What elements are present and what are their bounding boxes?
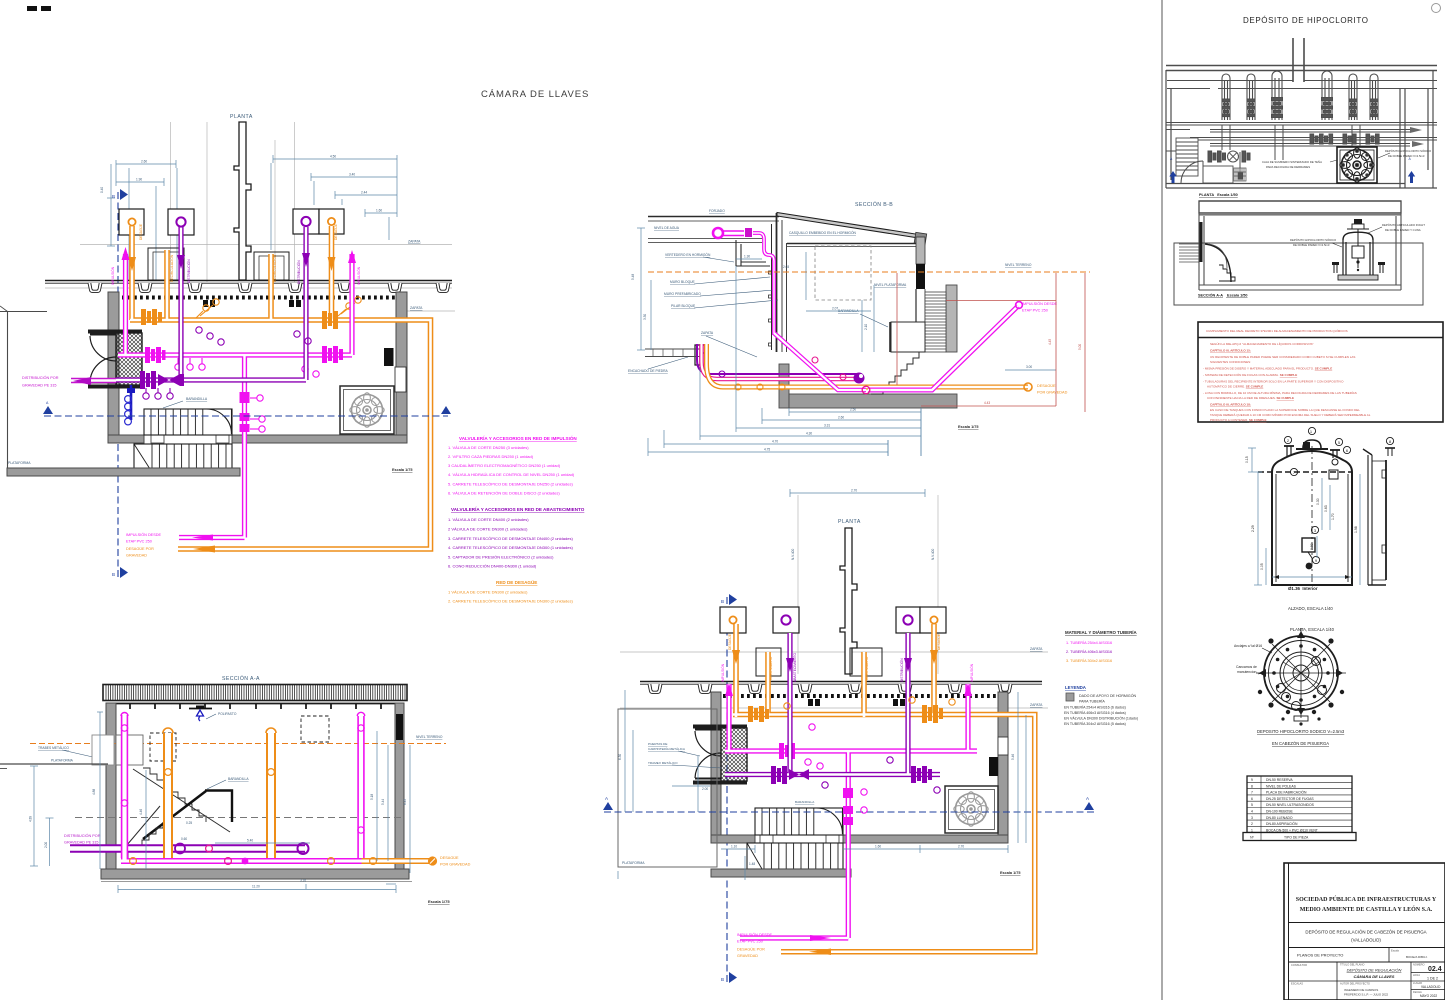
svg-text:4.70: 4.70 <box>772 440 778 444</box>
svg-text:ZAPATA: ZAPATA <box>1030 703 1043 707</box>
svg-text:CUMPLIMIENTO DEL REAL DECRETO: CUMPLIMIENTO DEL REAL DECRETO 379/2001 D… <box>1206 329 1348 333</box>
svg-text:DN-80 LLENADO: DN-80 LLENADO <box>1266 816 1293 820</box>
svg-text:3.16: 3.16 <box>300 879 306 883</box>
svg-text:AUTOMÁTICO DE CIERRE. SE CUMPL: AUTOMÁTICO DE CIERRE. SE CUMPLE <box>1207 385 1263 389</box>
svg-text:DEPÓSITO HIPOCLORITO SÓDICO: DEPÓSITO HIPOCLORITO SÓDICO <box>1385 148 1432 153</box>
svg-text:1.60: 1.60 <box>376 209 382 213</box>
svg-text:1.48: 1.48 <box>749 862 755 866</box>
svg-text:DISTRIBUCIÓN: DISTRIBUCIÓN <box>186 259 191 283</box>
svg-text:Escala 1/75: Escala 1/75 <box>428 899 450 904</box>
svg-text:5.46: 5.46 <box>1011 754 1015 760</box>
svg-text:Anclajes c/ lal Ø16: Anclajes c/ lal Ø16 <box>1234 644 1262 648</box>
svg-text:2.50: 2.50 <box>850 408 856 412</box>
svg-text:6. CONO REDUCCIÓN DN400-DN300: 6. CONO REDUCCIÓN DN400-DN300 (1 unidad) <box>448 564 537 569</box>
svg-text:UN RECIPIENTE DE DOBLE PARED P: UN RECIPIENTE DE DOBLE PARED PUEDE SER C… <box>1210 355 1355 359</box>
svg-text:CÁMARA DE LLAVES: CÁMARA DE LLAVES <box>1354 974 1395 979</box>
svg-text:DEPÓSITO DE REGULACIÓN DE CABE: DEPÓSITO DE REGULACIÓN DE CABEZÓN DE PIS… <box>1305 930 1426 935</box>
svg-text:REBOSADERO: REBOSADERO <box>865 656 869 680</box>
svg-text:DISTRIBUCIÓN: DISTRIBUCIÓN <box>899 658 904 682</box>
svg-text:3.31: 3.31 <box>824 424 830 428</box>
svg-text:3.40: 3.40 <box>349 173 355 177</box>
svg-text:Escala 1/75: Escala 1/75 <box>392 468 412 472</box>
svg-text:POR GRAVEDAD: POR GRAVEDAD <box>1037 391 1068 395</box>
svg-text:DN-50 RESERVA: DN-50 RESERVA <box>1266 778 1293 782</box>
svg-text:ABASTECIMIENTO: ABASTECIMIENTO <box>793 652 797 682</box>
svg-text:1.70: 1.70 <box>1331 513 1335 520</box>
svg-text:4.50: 4.50 <box>330 155 336 159</box>
svg-text:ESCALAS: ESCALAS <box>1291 982 1303 986</box>
svg-text:2.10: 2.10 <box>864 324 868 330</box>
svg-text:NIVEL PLATAFORMA: NIVEL PLATAFORMA <box>874 283 907 287</box>
svg-text:2.29: 2.29 <box>1251 525 1255 532</box>
svg-text:EN TUBERÍA 254x4 AISI316 (6 da: EN TUBERÍA 254x4 AISI316 (6 dados) <box>1064 706 1126 710</box>
svg-text:IMPULSIÓN: IMPULSIÓN <box>969 663 974 682</box>
svg-text:CAPÍTULO III, ARTÍCULO 15:: CAPÍTULO III, ARTÍCULO 15: <box>1210 348 1251 353</box>
svg-text:AUTOR DEL PROYECTO: AUTOR DEL PROYECTO <box>1340 982 1370 986</box>
svg-text:2.00: 2.00 <box>702 787 708 791</box>
svg-text:VALVULERÍA Y ACCESORIOS EN RED: VALVULERÍA Y ACCESORIOS EN RED DE ABASTE… <box>451 505 585 512</box>
svg-text:4. VÁLVULA HIDRAÚLICA DE CONTR: 4. VÁLVULA HIDRAÚLICA DE CONTROL DE NIVE… <box>448 472 575 477</box>
svg-text:(VALLADOLID): (VALLADOLID) <box>1351 938 1381 943</box>
svg-text:ENCACHADO DE PIEDRA: ENCACHADO DE PIEDRA <box>628 369 669 373</box>
svg-text:4.45: 4.45 <box>1048 339 1052 345</box>
svg-text:SEGÚN LA MIE-APQ-6 "ALMACENAMI: SEGÚN LA MIE-APQ-6 "ALMACENAMIENTO DE LÍ… <box>1210 341 1314 346</box>
svg-text:EN CABEZÓN DE PISUERGA: EN CABEZÓN DE PISUERGA <box>1272 741 1329 746</box>
svg-text:RECIRCULACIÓN: RECIRCULACIÓN <box>169 254 174 282</box>
svg-text:6.45: 6.45 <box>403 799 407 805</box>
svg-text:ZAPATA: ZAPATA <box>1030 647 1043 651</box>
svg-text:MURO PREFABRICADO: MURO PREFABRICADO <box>664 292 701 296</box>
svg-text:BARANDILLA: BARANDILLA <box>228 777 249 781</box>
svg-text:DESAGÜE: DESAGÜE <box>728 633 732 650</box>
svg-text:DADO DE APOYO DE HORMIGÓN: DADO DE APOYO DE HORMIGÓN <box>1079 693 1137 698</box>
svg-text:PLANTA: PLANTA <box>838 519 861 525</box>
svg-text:2. TUBERÍA 406x3 AISI316: 2. TUBERÍA 406x3 AISI316 <box>1066 650 1112 654</box>
svg-text:CÁMARA DE LLAVES: CÁMARA DE LLAVES <box>481 89 589 100</box>
svg-text:5.40: 5.40 <box>247 839 253 843</box>
svg-text:DEPOSITO HIPOCLORITO SODICO V=: DEPOSITO HIPOCLORITO SODICO V=2.5m3 <box>1257 729 1345 734</box>
svg-text:6.30: 6.30 <box>618 754 622 760</box>
svg-text:CONSULTOR: CONSULTOR <box>1291 963 1307 967</box>
svg-text:DESAGÜE: DESAGÜE <box>937 633 941 650</box>
svg-text:FORJADO: FORJADO <box>709 209 725 213</box>
svg-text:SECCIÓN B-B: SECCIÓN B-B <box>855 201 893 208</box>
svg-text:NIVEL DE AGUA: NIVEL DE AGUA <box>654 226 680 230</box>
svg-text:GRAVEDAD PE 315: GRAVEDAD PE 315 <box>22 384 57 388</box>
svg-text:0.25: 0.25 <box>186 821 192 825</box>
svg-text:- SISTEMA DE DETECCIÓN DE FUGA: - SISTEMA DE DETECCIÓN DE FUGAS CON ALAR… <box>1203 372 1297 377</box>
svg-text:DE DOBLE PARED Y CUNA: DE DOBLE PARED Y CUNA <box>1385 228 1421 232</box>
svg-text:TIPO DE PIEZA: TIPO DE PIEZA <box>1284 836 1309 840</box>
svg-text:TANQUE DEBERÁ QUEDAR A 10 CM C: TANQUE DEBERÁ QUEDAR A 10 CM COMO MÍNIMO… <box>1210 413 1371 417</box>
svg-text:0.90: 0.90 <box>1310 543 1314 550</box>
svg-text:VERTEDERO EN HORMIGÓN: VERTEDERO EN HORMIGÓN <box>665 252 711 257</box>
svg-text:2.70: 2.70 <box>958 845 964 849</box>
svg-text:- LOSA CON BORDILLO, DE 10 CM: - LOSA CON BORDILLO, DE 10 CM DE ALTURA … <box>1203 391 1357 395</box>
svg-text:PILAR BLOQUE: PILAR BLOQUE <box>671 304 696 308</box>
svg-text:2. V/FILTRO CAZA PIEDRAS DN250: 2. V/FILTRO CAZA PIEDRAS DN250 (1 unidad… <box>448 454 534 459</box>
svg-text:1.60: 1.60 <box>875 845 881 849</box>
svg-text:DE DOBLE PARED V=2.5m3: DE DOBLE PARED V=2.5m3 <box>1293 243 1330 247</box>
svg-text:4. CARRETE TELESCÓPICO DE DESM: 4. CARRETE TELESCÓPICO DE DESMONTAJE DN3… <box>448 545 573 550</box>
svg-text:9: 9 <box>1251 778 1253 782</box>
svg-text:5.18: 5.18 <box>370 794 374 800</box>
svg-text:Escala 1/75: Escala 1/75 <box>1000 871 1020 875</box>
svg-text:3: 3 <box>1251 816 1253 820</box>
svg-text:BOCA DN-500 + PVC Ø110 VENT: BOCA DN-500 + PVC Ø110 VENT <box>1266 828 1318 832</box>
svg-text:CASQUILLO EMBEBIDO EN EL HORMI: CASQUILLO EMBEBIDO EN EL HORMIGÓN <box>789 230 857 235</box>
svg-text:4.43: 4.43 <box>984 401 990 405</box>
svg-text:ETAP PVC 250: ETAP PVC 250 <box>737 940 763 944</box>
svg-text:DISTRIBUCIÓN POR: DISTRIBUCIÓN POR <box>64 833 101 838</box>
svg-text:PROPERCIO S.L.P. — JULIO 2022: PROPERCIO S.L.P. — JULIO 2022 <box>1344 993 1389 997</box>
svg-text:VALLADOLID: VALLADOLID <box>1421 985 1441 989</box>
svg-text:0.30: 0.30 <box>1316 498 1320 505</box>
svg-text:DN-50 NIVEL ULTRASONIDOS: DN-50 NIVEL ULTRASONIDOS <box>1266 803 1315 807</box>
svg-text:B: B <box>721 599 724 604</box>
svg-text:2. CARRETE TELESCÓPICO DE DESM: 2. CARRETE TELESCÓPICO DE DESMONTAJE DN3… <box>448 599 573 604</box>
svg-text:B: B <box>112 572 115 577</box>
svg-text:GRAVEDAD: GRAVEDAD <box>737 954 758 958</box>
svg-text:DE DOBLE PARED V=2.5m3: DE DOBLE PARED V=2.5m3 <box>1388 154 1425 158</box>
svg-text:IMPULSIÓN DESDE: IMPULSIÓN DESDE <box>737 932 772 937</box>
svg-text:IMPULSIÓN: IMPULSIÓN <box>110 266 115 285</box>
svg-text:PLATAFORMA: PLATAFORMA <box>8 461 31 465</box>
svg-text:3. TUBERÍA 304x2 AISI316: 3. TUBERÍA 304x2 AISI316 <box>1066 659 1112 663</box>
svg-text:DESAGÜE POR: DESAGÜE POR <box>737 948 765 952</box>
svg-text:LEYENDA: LEYENDA <box>1065 685 1087 690</box>
svg-text:BARANDILLA: BARANDILLA <box>186 397 208 401</box>
svg-text:2: 2 <box>1251 822 1253 826</box>
svg-text:Ø1.36 Interior: Ø1.36 Interior <box>1288 586 1318 591</box>
svg-text:DESAGÜE: DESAGÜE <box>1037 384 1056 388</box>
svg-text:1. VÁLVULA DE CORTE DN400 (2 u: 1. VÁLVULA DE CORTE DN400 (2 unidades) <box>448 517 529 522</box>
svg-text:4: 4 <box>1251 810 1253 814</box>
svg-text:1. TUBERÍA 254x4 AISI316: 1. TUBERÍA 254x4 AISI316 <box>1066 641 1112 645</box>
svg-text:4.75: 4.75 <box>764 448 770 452</box>
svg-text:DESAGÜE: DESAGÜE <box>440 856 459 860</box>
svg-text:5. CAPTADOR DE PRESIÓN ELECTRÓ: 5. CAPTADOR DE PRESIÓN ELECTRÓNICO (2 un… <box>448 555 554 560</box>
svg-text:PLACA DE FABRICACIÓN: PLACA DE FABRICACIÓN <box>1266 790 1307 795</box>
svg-text:2.07: 2.07 <box>832 307 838 311</box>
svg-text:IMPULSIÓN: IMPULSIÓN <box>356 266 361 285</box>
svg-text:DISTRIBUCIÓN: DISTRIBUCIÓN <box>296 260 301 284</box>
svg-text:PLANTA Escala 1/50: PLANTA Escala 1/50 <box>1199 193 1238 197</box>
svg-text:0.40: 0.40 <box>100 187 104 193</box>
svg-text:DEPÓSITO DE REGULACIÓN: DEPÓSITO DE REGULACIÓN <box>1347 968 1402 973</box>
svg-text:TRABES METÁLICO: TRABES METÁLICO <box>38 746 69 750</box>
svg-text:1 DE 2: 1 DE 2 <box>1427 977 1438 981</box>
svg-text:Escala: Escala <box>1391 949 1399 953</box>
svg-text:2.44: 2.44 <box>361 191 367 195</box>
svg-text:REBOSADERO: REBOSADERO <box>769 656 773 680</box>
svg-text:1: 1 <box>1251 828 1253 832</box>
svg-text:SECCIÓN A-A: SECCIÓN A-A <box>1198 293 1223 298</box>
svg-text:2.70: 2.70 <box>851 489 857 493</box>
svg-text:0.05: 0.05 <box>1260 563 1264 570</box>
svg-text:TÍTULO DEL PLANO: TÍTULO DEL PLANO <box>1340 963 1364 967</box>
svg-text:ETAP PVC 250: ETAP PVC 250 <box>126 540 152 544</box>
svg-text:CARPINTERÍA METÁLICA: CARPINTERÍA METÁLICA <box>648 747 686 751</box>
svg-text:Cancamos de: Cancamos de <box>1236 665 1257 669</box>
svg-text:NIVEL DE POLEAS: NIVEL DE POLEAS <box>1266 784 1297 788</box>
svg-text:- TUBULADURAS DEL RECIPIENTE I: - TUBULADURAS DEL RECIPIENTE INTERIOR SO… <box>1203 380 1344 384</box>
svg-text:N.V.400: N.V.400 <box>791 549 795 560</box>
svg-text:PLANTA: PLANTA <box>230 114 253 120</box>
svg-text:SOCIEDAD PÚBLICA DE INFRAESTRU: SOCIEDAD PÚBLICA DE INFRAESTRUCTURAS Y <box>1296 895 1437 903</box>
svg-text:EN TUBERÍA 304x2 AISI316 (5 da: EN TUBERÍA 304x2 AISI316 (5 dados) <box>1064 722 1126 726</box>
svg-text:NIVEL TERRENO: NIVEL TERRENO <box>1005 263 1032 267</box>
svg-text:TRAMEX METÁLICO: TRAMEX METÁLICO <box>648 761 678 765</box>
svg-text:CAPÍTULO III, ARTÍCULO 18:: CAPÍTULO III, ARTÍCULO 18: <box>1210 402 1251 407</box>
svg-text:IMPULSIÓN DESDE: IMPULSIÓN DESDE <box>1022 301 1057 306</box>
svg-text:manutencion: manutencion <box>1237 670 1257 674</box>
svg-text:DISTRIBUCIÓN POR: DISTRIBUCIÓN POR <box>22 375 59 380</box>
svg-text:0.15: 0.15 <box>1245 456 1249 463</box>
svg-text:MEDIO AMBIENTE DE CASTILLA Y L: MEDIO AMBIENTE DE CASTILLA Y LEÓN S.A. <box>1300 905 1433 913</box>
svg-text:BOCE/A DIBUJ.: BOCE/A DIBUJ. <box>1406 955 1428 959</box>
svg-text:5. CARRETE TELESCÓPICO DE DESM: 5. CARRETE TELESCÓPICO DE DESMONTAJE DN2… <box>448 482 573 487</box>
svg-text:2.03: 2.03 <box>783 265 789 269</box>
svg-text:RED DE DESAGÜE: RED DE DESAGÜE <box>496 579 537 585</box>
svg-text:1.98: 1.98 <box>1354 526 1358 533</box>
svg-text:5.44: 5.44 <box>381 799 385 805</box>
svg-text:MURO BLOQUE: MURO BLOQUE <box>670 280 696 284</box>
svg-text:CON PENDIENTE HACIA LA RED DE: CON PENDIENTE HACIA LA RED DE DRENAJES. … <box>1207 396 1294 400</box>
svg-text:PARA RECOGIDA DE DERRAMES: PARA RECOGIDA DE DERRAMES <box>1266 165 1310 169</box>
svg-text:4.88: 4.88 <box>92 789 96 795</box>
svg-text:6: 6 <box>1251 797 1253 801</box>
svg-text:DESAGÜE: DESAGÜE <box>334 223 338 240</box>
svg-text:GRAVEDAD: GRAVEDAD <box>126 554 147 558</box>
svg-text:4.30: 4.30 <box>806 432 812 436</box>
svg-text:PRODUCTO A CONTENER. SE CUMPLE: PRODUCTO A CONTENER. SE CUMPLE <box>1210 418 1266 422</box>
svg-text:DEPÓSITO ARTICULADO P/AGIT: DEPÓSITO ARTICULADO P/AGIT <box>1382 222 1425 227</box>
svg-text:2.60: 2.60 <box>141 160 147 164</box>
svg-text:1 VÁLVULA DE CORTE DN300 (2 un: 1 VÁLVULA DE CORTE DN300 (2 unidades) <box>448 590 528 595</box>
svg-text:N.V.400: N.V.400 <box>931 549 935 560</box>
svg-text:7: 7 <box>1251 791 1253 795</box>
svg-text:4.46: 4.46 <box>139 809 143 815</box>
svg-text:SECCIÓN A-A: SECCIÓN A-A <box>222 675 260 682</box>
svg-text:HOJA: HOJA <box>1413 973 1420 977</box>
svg-text:0.63: 0.63 <box>1324 505 1328 512</box>
svg-text:PUERTAS DE: PUERTAS DE <box>648 742 667 746</box>
svg-text:B: B <box>112 194 115 199</box>
svg-text:RECIRCULACIÓN: RECIRCULACIÓN <box>272 254 277 282</box>
svg-text:PARA TUBERÍA: PARA TUBERÍA <box>1079 700 1105 704</box>
svg-text:EN TUBERÍA 406x3 AISI316 (4 da: EN TUBERÍA 406x3 AISI316 (4 dados) <box>1064 711 1126 715</box>
svg-text:ETAP PVC 250: ETAP PVC 250 <box>1022 309 1048 313</box>
svg-text:3. CARRETE TELESCÓPICO DE DESM: 3. CARRETE TELESCÓPICO DE DESMONTAJE DN4… <box>448 536 573 541</box>
svg-text:ZAPATA: ZAPATA <box>701 331 714 335</box>
svg-text:1.90: 1.90 <box>136 178 142 182</box>
svg-text:3.00: 3.00 <box>1026 365 1032 369</box>
svg-text:0.60: 0.60 <box>181 837 187 841</box>
svg-text:8: 8 <box>1251 784 1253 788</box>
svg-text:A: A <box>1086 796 1089 801</box>
svg-text:6. VÁLVULA DE RETENCIÓN DE DOB: 6. VÁLVULA DE RETENCIÓN DE DOBLE DISCO (… <box>448 491 560 496</box>
svg-text:B: B <box>721 977 724 982</box>
svg-text:3 CAUDALÍMETRO ELECTROMAGNÉTIC: 3 CAUDALÍMETRO ELECTROMAGNÉTICO DN250 (1… <box>448 463 561 468</box>
svg-text:ZAPATA: ZAPATA <box>410 306 423 310</box>
svg-text:5.00: 5.00 <box>1078 344 1082 350</box>
svg-text:1. VÁLVULA DE CORTE DN250 (3 u: 1. VÁLVULA DE CORTE DN250 (3 unidades) <box>448 445 529 450</box>
svg-text:MATERIAL Y DIÁMETRO TUBERÍA: MATERIAL Y DIÁMETRO TUBERÍA <box>1065 630 1137 635</box>
svg-text:IMPULSIÓN DESDE: IMPULSIÓN DESDE <box>126 532 161 537</box>
svg-text:DESAGÜE: DESAGÜE <box>139 223 143 240</box>
svg-text:PLATAFORMA: PLATAFORMA <box>622 861 645 865</box>
svg-text:EN CASO DE TANQUES CON FONDO P: EN CASO DE TANQUES CON FONDO PLANO LA SU… <box>1210 408 1360 412</box>
svg-text:DN-100 REBOSE: DN-100 REBOSE <box>1266 810 1293 814</box>
svg-text:PLATAFORMA: PLATAFORMA <box>51 759 74 763</box>
svg-text:1.10: 1.10 <box>731 845 737 849</box>
svg-text:5: 5 <box>1251 803 1253 807</box>
svg-text:DEPÓSITO DE HIPOCLORITO: DEPÓSITO DE HIPOCLORITO <box>1243 16 1369 25</box>
svg-text:Escala 1/50: Escala 1/50 <box>1226 294 1248 298</box>
svg-text:- MISMA PRESIÓN DE DISEÑO Y MA: - MISMA PRESIÓN DE DISEÑO Y MATERIAL ADE… <box>1203 366 1332 371</box>
svg-text:DEPÓSITO HIPOCLORITO SÓDICO: DEPÓSITO HIPOCLORITO SÓDICO <box>1290 237 1337 242</box>
svg-text:2 VÁLVULA DE CORTE DN300 (1 un: 2 VÁLVULA DE CORTE DN300 (1 unidades) <box>448 527 528 532</box>
svg-text:Escala 1/75: Escala 1/75 <box>958 425 978 429</box>
svg-text:A: A <box>605 796 608 801</box>
svg-text:2.00: 2.00 <box>44 842 48 848</box>
svg-text:ALZADO, ESCALA 1/40: ALZADO, ESCALA 1/40 <box>1288 606 1333 611</box>
svg-text:5.48: 5.48 <box>631 274 635 280</box>
svg-text:PLANTA, ESCALA 1/40: PLANTA, ESCALA 1/40 <box>1290 627 1335 632</box>
svg-text:CAJA DE SUMIDERO SINTERIZADO D: CAJA DE SUMIDERO SINTERIZADO DE TEÑA <box>1262 159 1322 164</box>
svg-text:NIVEL TERRENO: NIVEL TERRENO <box>416 735 443 739</box>
svg-text:2.60: 2.60 <box>838 416 844 420</box>
svg-text:GRAVEDAD PE 315: GRAVEDAD PE 315 <box>64 841 99 845</box>
svg-text:SIGUIENTES CONDICIONES:: SIGUIENTES CONDICIONES: <box>1210 360 1251 364</box>
svg-text:DN-25 DETECTOR DE FUGAS: DN-25 DETECTOR DE FUGAS <box>1266 797 1314 801</box>
svg-text:INGENIERO DE CAMINOS: INGENIERO DE CAMINOS <box>1344 988 1378 992</box>
svg-text:DN-80 ASPIRACIÓN: DN-80 ASPIRACIÓN <box>1266 821 1298 826</box>
svg-text:POLIPASTO: POLIPASTO <box>218 712 237 716</box>
svg-text:11.20: 11.20 <box>252 885 260 889</box>
svg-text:POR GRAVEDAD: POR GRAVEDAD <box>440 863 471 867</box>
svg-text:4.89: 4.89 <box>29 816 33 822</box>
svg-text:DESAGÜE POR: DESAGÜE POR <box>126 547 154 551</box>
svg-text:02.4: 02.4 <box>1428 966 1442 973</box>
svg-text:BARANDILLA: BARANDILLA <box>795 800 815 804</box>
svg-text:EN VÁLVULA DN300 DISTRIBUCIÓN: EN VÁLVULA DN300 DISTRIBUCIÓN (1dado) <box>1064 716 1138 721</box>
svg-text:IMPULSIÓN: IMPULSIÓN <box>720 663 725 682</box>
svg-text:PLANOS DE PROYECTO: PLANOS DE PROYECTO <box>1297 953 1343 958</box>
svg-text:VALVULERÍA Y ACCESORIOS EN RED: VALVULERÍA Y ACCESORIOS EN RED DE IMPULS… <box>459 434 577 441</box>
svg-text:1.30: 1.30 <box>744 255 750 259</box>
svg-text:3.30: 3.30 <box>643 314 647 320</box>
svg-text:MAYO 2022: MAYO 2022 <box>1420 994 1437 998</box>
svg-text:ZAPATA: ZAPATA <box>408 240 421 244</box>
